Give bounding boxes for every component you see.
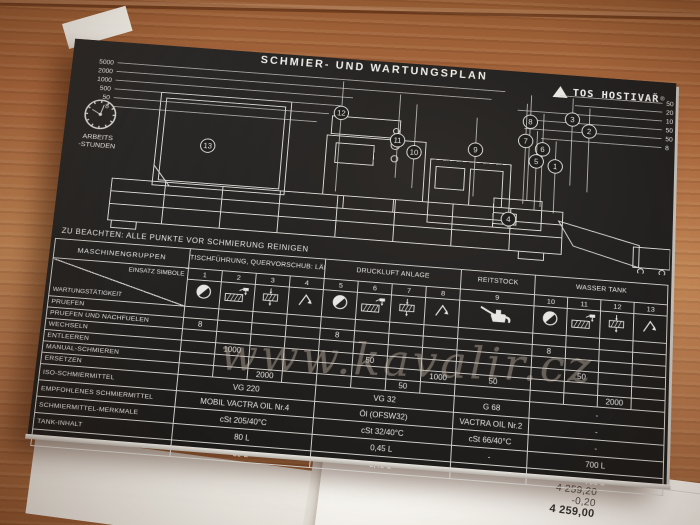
hours-scale-label: 1000	[666, 119, 674, 127]
hours-scale-label: 500	[665, 128, 674, 135]
hours-scale-label: 5000	[99, 59, 115, 66]
corner-symbols-label: EINSATZ SIMBOLE	[128, 267, 185, 278]
point-number: 11	[393, 136, 401, 145]
scale-line	[541, 139, 661, 148]
point-leader-line	[473, 118, 477, 197]
point-leader-line	[553, 141, 556, 213]
point-number: 12	[337, 109, 346, 118]
direction-arrow-icon	[641, 317, 660, 334]
oil-fill-icon	[566, 308, 600, 338]
point-leader-line	[534, 131, 538, 210]
level-check-icon	[321, 290, 357, 320]
oil-change-icon	[606, 313, 628, 333]
hours-scale-label: 500	[99, 85, 111, 92]
oil-change-icon	[600, 311, 634, 341]
level-check-icon	[541, 309, 560, 328]
point-number: 10	[409, 148, 418, 157]
oil-change-icon	[253, 284, 289, 314]
point-number: 2	[587, 127, 592, 136]
scale-line	[531, 120, 662, 130]
point-number: 5	[534, 157, 539, 166]
oil-can-icon	[477, 302, 515, 326]
clock-tick	[110, 121, 112, 123]
point-number: 8	[528, 118, 533, 127]
oil-fill-icon	[223, 284, 252, 304]
oil-change-icon	[390, 295, 426, 325]
direction-arrow-icon	[287, 287, 323, 317]
oil-fill-icon	[569, 311, 597, 331]
hours-scale-label: 2000	[98, 68, 114, 75]
scale-line	[575, 106, 662, 113]
direction-arrow-icon	[432, 301, 452, 318]
oil-fill-icon	[356, 292, 392, 322]
point-leader-line	[570, 98, 574, 185]
clock-tick	[88, 106, 90, 108]
level-check-icon	[193, 282, 213, 301]
lubrication-plan-plate: SCHMIER- UND WARTUNGSPLAN TOS HOSTIVAŘ ®	[28, 39, 677, 485]
level-check-icon	[330, 293, 350, 312]
level-check-icon	[185, 279, 222, 309]
oil-change-icon	[260, 287, 283, 307]
scale-line	[113, 106, 317, 121]
point-number: 13	[203, 141, 212, 150]
point-leader-line	[587, 108, 590, 192]
point-number: 6	[540, 145, 545, 154]
hours-scale-label: 8	[665, 145, 669, 152]
scale-line	[116, 80, 353, 98]
clock-tick	[91, 124, 93, 126]
point-number: 7	[523, 137, 528, 146]
scale-line	[560, 96, 662, 104]
clock-icon	[84, 99, 117, 129]
working-hours-label-2: -STUNDEN	[78, 139, 116, 150]
hours-scale-label: 5000	[666, 101, 674, 109]
point-number: 1	[553, 162, 558, 171]
point-number: 9	[473, 146, 478, 155]
direction-arrow-icon	[633, 314, 667, 344]
level-check-icon	[533, 306, 567, 336]
hours-scale-label: 50	[665, 137, 673, 144]
direction-arrow-icon	[424, 298, 460, 328]
hours-scale-label: 1000	[97, 76, 113, 83]
oil-change-icon	[397, 297, 420, 317]
scale-line	[115, 89, 341, 106]
oil-fill-icon	[219, 282, 256, 312]
hours-scale-label: 2000	[666, 110, 674, 118]
scale-line	[114, 98, 329, 114]
direction-arrow-icon	[296, 291, 316, 308]
corner-activity-label: WARTUNGSTÄTIGKEIT	[52, 286, 122, 298]
hours-scale-label: 50	[102, 94, 110, 101]
oil-fill-icon	[359, 295, 388, 315]
point-number: 3	[570, 115, 575, 124]
